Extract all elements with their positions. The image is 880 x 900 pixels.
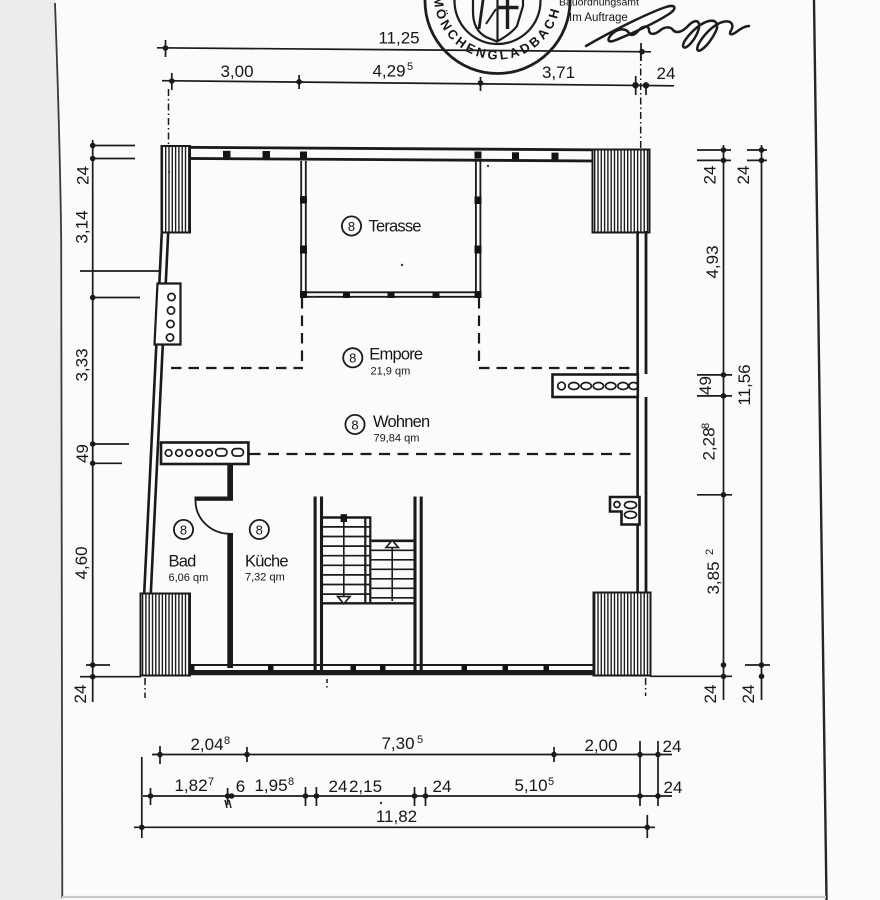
svg-text:79,84 qm: 79,84 qm xyxy=(374,433,420,445)
svg-text:8: 8 xyxy=(351,417,358,432)
svg-text:6: 6 xyxy=(236,777,245,796)
svg-text:24: 24 xyxy=(701,685,720,704)
svg-text:Im Auftrage: Im Auftrage xyxy=(569,12,628,24)
svg-text:6,06 qm: 6,06 qm xyxy=(169,572,209,584)
svg-text:1,82: 1,82 xyxy=(174,776,207,795)
svg-text:24: 24 xyxy=(433,777,452,796)
svg-text:3,71: 3,71 xyxy=(542,63,575,82)
svg-text:24: 24 xyxy=(701,166,720,185)
svg-text:11,82: 11,82 xyxy=(376,807,417,826)
svg-text:5,10: 5,10 xyxy=(514,776,547,795)
svg-text:24: 24 xyxy=(657,64,676,83)
svg-text:5: 5 xyxy=(407,61,413,73)
svg-text:2,15: 2,15 xyxy=(349,777,382,796)
svg-text:3,00: 3,00 xyxy=(220,62,253,81)
svg-text:3,85: 3,85 xyxy=(704,561,723,594)
svg-text:5: 5 xyxy=(417,734,423,746)
svg-text:Küche: Küche xyxy=(245,553,288,571)
svg-text:4,29: 4,29 xyxy=(372,62,405,81)
svg-text:Bad: Bad xyxy=(169,553,197,571)
svg-text:24: 24 xyxy=(329,777,348,796)
svg-text:8: 8 xyxy=(256,522,263,537)
svg-text:2: 2 xyxy=(704,549,716,555)
svg-text:2,04: 2,04 xyxy=(190,735,223,754)
svg-text:24: 24 xyxy=(663,737,682,756)
svg-text:7,32 qm: 7,32 qm xyxy=(245,572,285,584)
svg-text:8: 8 xyxy=(180,522,187,537)
svg-text:Wohnen: Wohnen xyxy=(373,413,430,431)
svg-text:4,60: 4,60 xyxy=(72,546,91,579)
svg-text:24: 24 xyxy=(739,685,758,704)
svg-text:3,33: 3,33 xyxy=(73,348,92,381)
svg-text:7,30: 7,30 xyxy=(381,734,414,753)
svg-text:24: 24 xyxy=(71,685,90,704)
svg-text:24: 24 xyxy=(734,166,753,185)
svg-text:21,9 qm: 21,9 qm xyxy=(371,366,411,378)
svg-text:8: 8 xyxy=(700,423,712,429)
svg-text:11,56: 11,56 xyxy=(735,364,754,405)
svg-text:49: 49 xyxy=(696,376,715,395)
svg-text:49: 49 xyxy=(73,444,92,463)
svg-text:1,95: 1,95 xyxy=(254,776,287,795)
svg-text:8: 8 xyxy=(348,219,355,234)
svg-text:11,25: 11,25 xyxy=(378,29,419,48)
svg-text:8: 8 xyxy=(349,351,356,366)
svg-text:7: 7 xyxy=(208,776,214,788)
svg-text:4,93: 4,93 xyxy=(703,245,722,278)
svg-text:24: 24 xyxy=(664,778,683,797)
svg-text:Terasse: Terasse xyxy=(369,218,422,236)
svg-text:8: 8 xyxy=(224,735,230,747)
svg-text:Bauordnungsamt: Bauordnungsamt xyxy=(559,0,639,9)
svg-text:5: 5 xyxy=(548,776,554,788)
svg-text:2,00: 2,00 xyxy=(584,736,617,755)
svg-text:2,28: 2,28 xyxy=(700,427,719,460)
svg-text:24: 24 xyxy=(74,166,93,185)
svg-text:8: 8 xyxy=(288,776,294,788)
svg-text:Empore: Empore xyxy=(369,346,423,364)
svg-text:3,14: 3,14 xyxy=(73,210,92,243)
